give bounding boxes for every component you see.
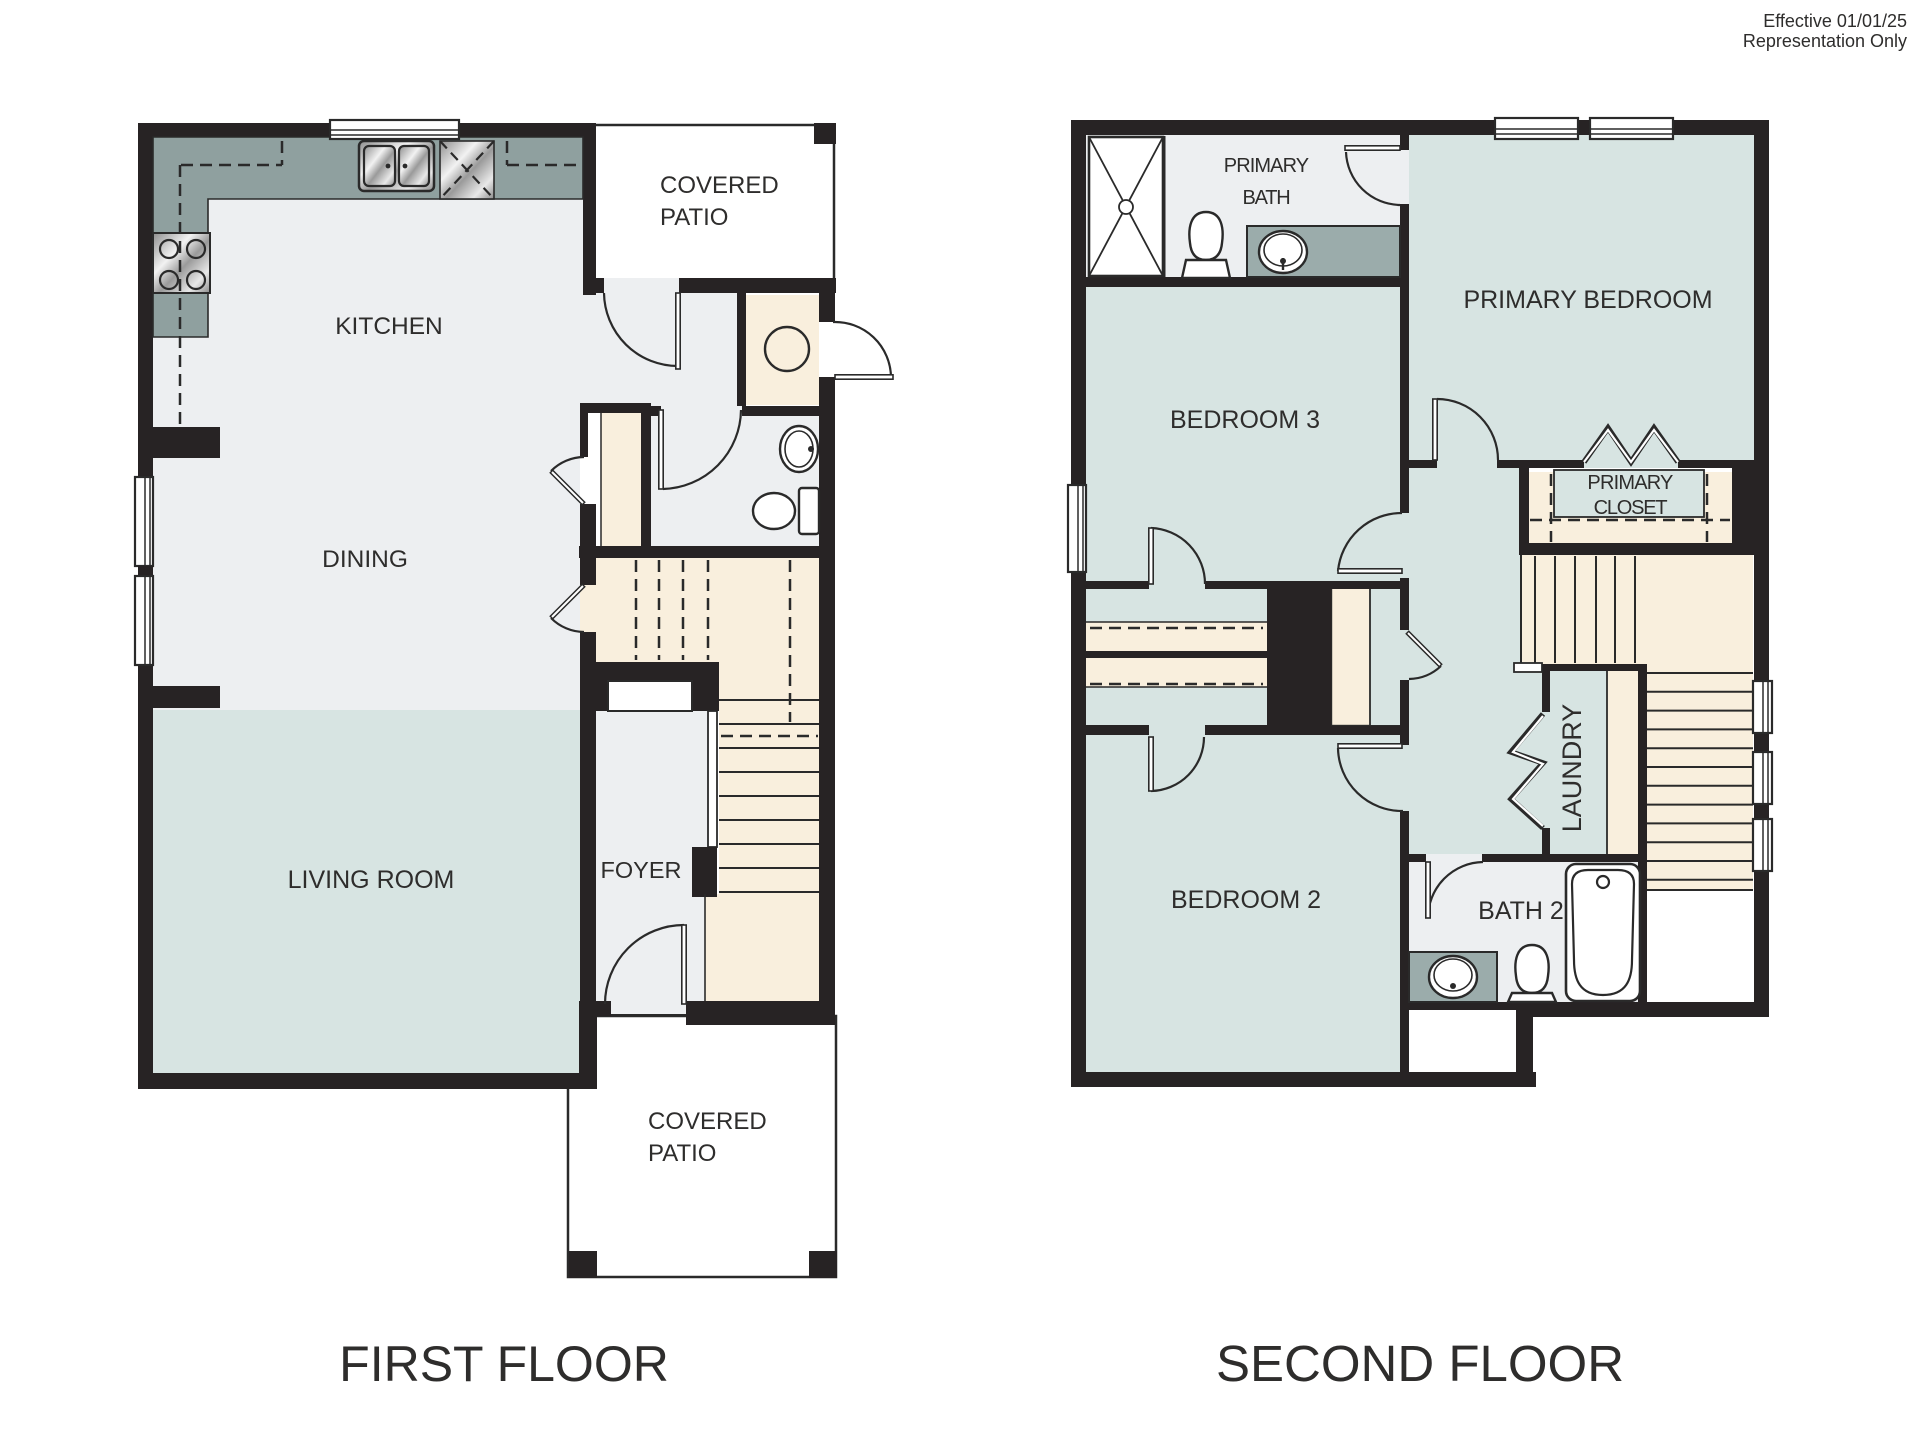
svg-text:LAUNDRY: LAUNDRY xyxy=(1557,704,1587,833)
svg-text:BEDROOM 2: BEDROOM 2 xyxy=(1171,886,1321,914)
svg-text:COVERED: COVERED xyxy=(660,172,779,199)
svg-text:COVERED: COVERED xyxy=(648,1108,767,1135)
svg-text:PATIO: PATIO xyxy=(648,1140,716,1167)
svg-text:Representation Only: Representation Only xyxy=(1743,31,1907,51)
svg-text:CLOSET: CLOSET xyxy=(1594,497,1668,519)
svg-text:FIRST FLOOR: FIRST FLOOR xyxy=(339,1336,669,1392)
svg-text:FOYER: FOYER xyxy=(601,857,682,883)
svg-text:BEDROOM 3: BEDROOM 3 xyxy=(1170,406,1320,434)
svg-text:SECOND FLOOR: SECOND FLOOR xyxy=(1216,1335,1624,1392)
svg-text:PATIO: PATIO xyxy=(660,204,728,231)
svg-text:PRIMARY BEDROOM: PRIMARY BEDROOM xyxy=(1463,286,1712,314)
svg-text:KITCHEN: KITCHEN xyxy=(335,313,443,340)
svg-text:BATH 2: BATH 2 xyxy=(1478,897,1564,925)
svg-text:BATH: BATH xyxy=(1242,187,1289,209)
svg-text:LIVING ROOM: LIVING ROOM xyxy=(288,866,455,894)
svg-text:PRIMARY: PRIMARY xyxy=(1224,155,1309,177)
svg-text:DINING: DINING xyxy=(322,546,408,573)
svg-text:Effective 01/01/25: Effective 01/01/25 xyxy=(1763,11,1907,31)
svg-text:PRIMARY: PRIMARY xyxy=(1587,472,1673,494)
